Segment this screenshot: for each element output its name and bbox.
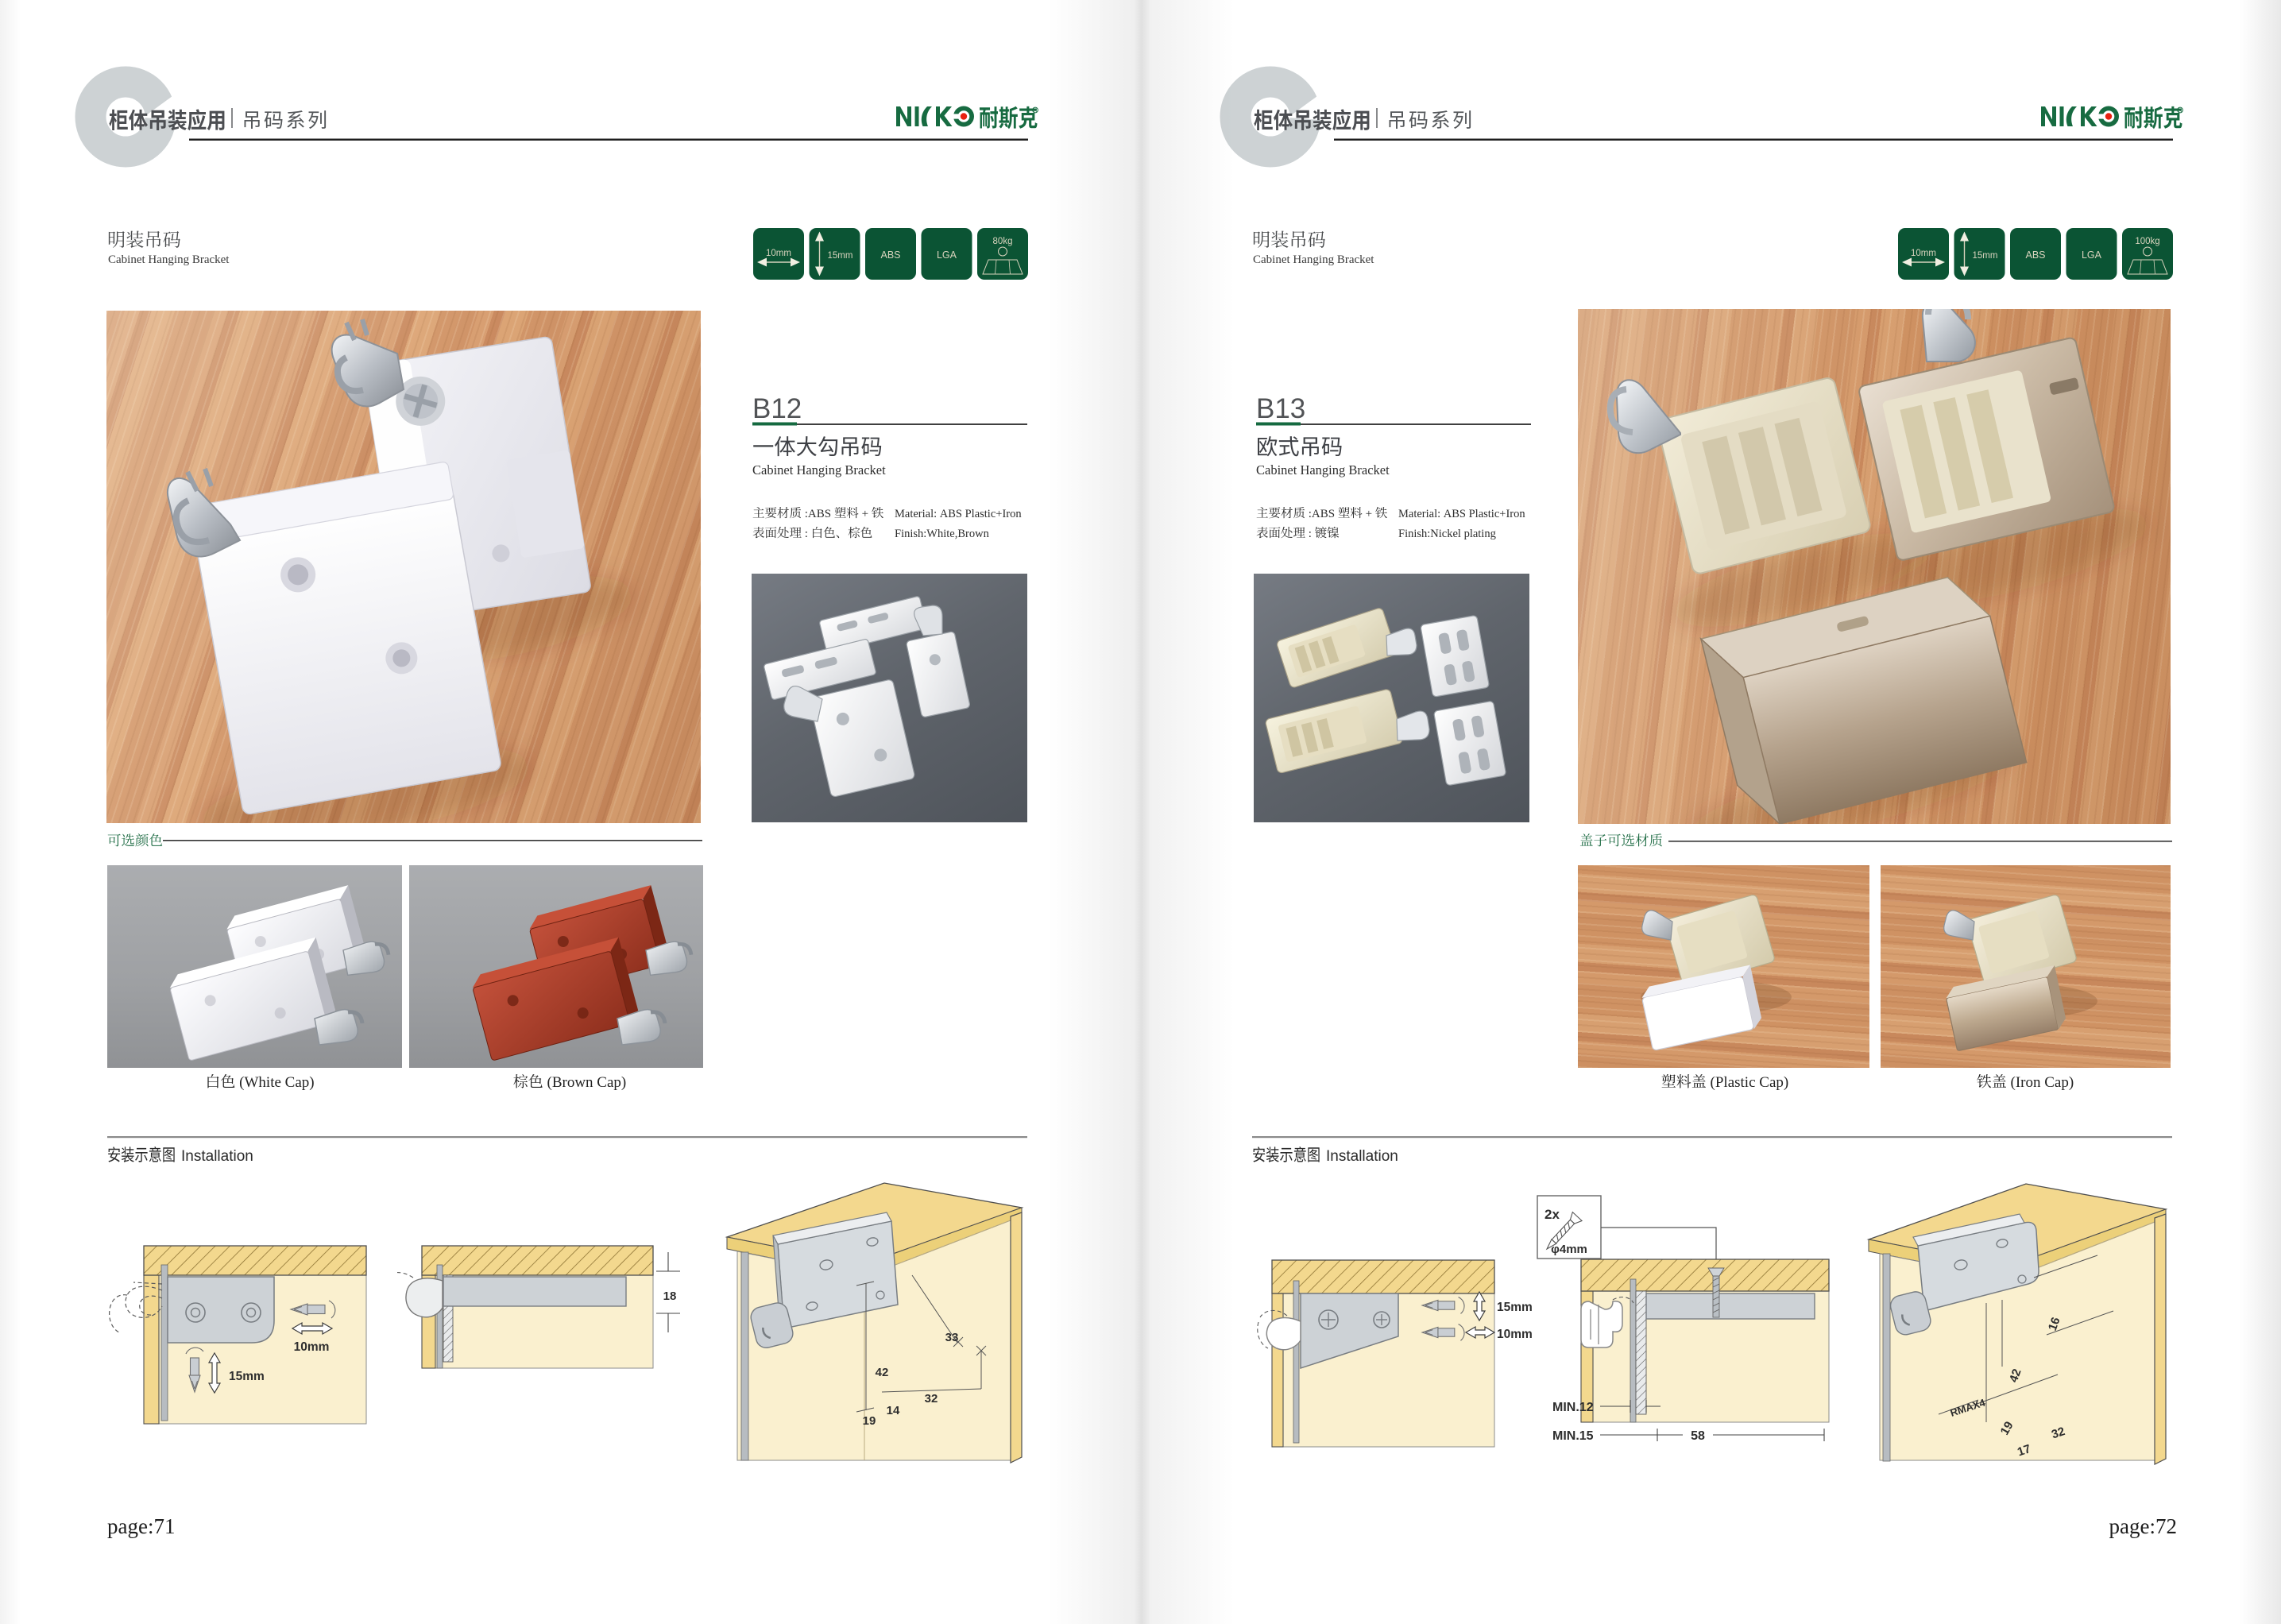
svg-text::ABS: :ABS <box>1305 508 1338 520</box>
svg-text:(Brown Cap): (Brown Cap) <box>543 1074 626 1091</box>
svg-text:MIN.12: MIN.12 <box>1552 1401 1594 1414</box>
svg-text:10mm: 10mm <box>766 249 791 258</box>
svg-text:Installation: Installation <box>181 1148 253 1165</box>
svg-text:10mm: 10mm <box>1911 249 1936 258</box>
svg-text:B12: B12 <box>752 393 802 424</box>
svg-text:100kg: 100kg <box>2135 237 2159 246</box>
svg-text:+: + <box>859 508 872 520</box>
svg-text:ABS: ABS <box>880 249 900 261</box>
svg-text:19: 19 <box>863 1414 876 1428</box>
svg-text:Finish:White,Brown: Finish:White,Brown <box>895 528 990 540</box>
svg-text:58: 58 <box>1691 1429 1705 1443</box>
svg-text:42: 42 <box>876 1366 889 1379</box>
svg-text:+: + <box>1363 508 1375 520</box>
svg-text:15mm: 15mm <box>229 1370 265 1383</box>
svg-text:Cabinet Hanging Bracket: Cabinet Hanging Bracket <box>752 462 886 478</box>
svg-text:33: 33 <box>945 1331 959 1344</box>
svg-text:18: 18 <box>663 1290 677 1303</box>
svg-text:Cabinet Hanging Bracket: Cabinet Hanging Bracket <box>1256 462 1390 478</box>
svg-text:80kg: 80kg <box>993 237 1013 246</box>
svg-text:10mm: 10mm <box>1497 1328 1533 1341</box>
svg-text:Cabinet Hanging Bracket: Cabinet Hanging Bracket <box>108 253 230 266</box>
svg-text:10mm: 10mm <box>294 1340 330 1354</box>
svg-text:LGA: LGA <box>2082 249 2102 261</box>
svg-text::ABS: :ABS <box>802 508 834 520</box>
svg-text:2x: 2x <box>1545 1207 1560 1222</box>
svg-text::: : <box>1305 528 1315 540</box>
svg-text:32: 32 <box>925 1392 938 1406</box>
svg-text::: : <box>802 528 811 540</box>
svg-text:15mm: 15mm <box>1497 1301 1533 1314</box>
svg-text:Material: ABS Plastic+Iron: Material: ABS Plastic+Iron <box>895 508 1022 520</box>
svg-text:14: 14 <box>887 1404 900 1417</box>
svg-text:B13: B13 <box>1256 393 1305 424</box>
svg-text:LGA: LGA <box>937 249 957 261</box>
svg-text:(Iron Cap): (Iron Cap) <box>2007 1074 2074 1091</box>
svg-text:Cabinet Hanging Bracket: Cabinet Hanging Bracket <box>1253 253 1374 266</box>
svg-text:page:72: page:72 <box>2109 1514 2177 1538</box>
svg-text:Material: ABS Plastic+Iron: Material: ABS Plastic+Iron <box>1398 508 1525 520</box>
svg-text:page:71: page:71 <box>107 1514 175 1538</box>
svg-text:(White Cap): (White Cap) <box>235 1074 314 1091</box>
svg-text:ABS: ABS <box>2025 249 2045 261</box>
svg-text:R: R <box>1034 108 1038 114</box>
svg-text:Finish:Nickel plating: Finish:Nickel plating <box>1398 528 1496 540</box>
svg-text:15mm: 15mm <box>1973 251 1998 261</box>
svg-text:(Plastic Cap): (Plastic Cap) <box>1707 1074 1788 1091</box>
svg-text:Installation: Installation <box>1326 1148 1398 1165</box>
svg-text:15mm: 15mm <box>828 251 853 261</box>
svg-text:R: R <box>2179 108 2182 114</box>
svg-text:MIN.15: MIN.15 <box>1552 1429 1594 1443</box>
